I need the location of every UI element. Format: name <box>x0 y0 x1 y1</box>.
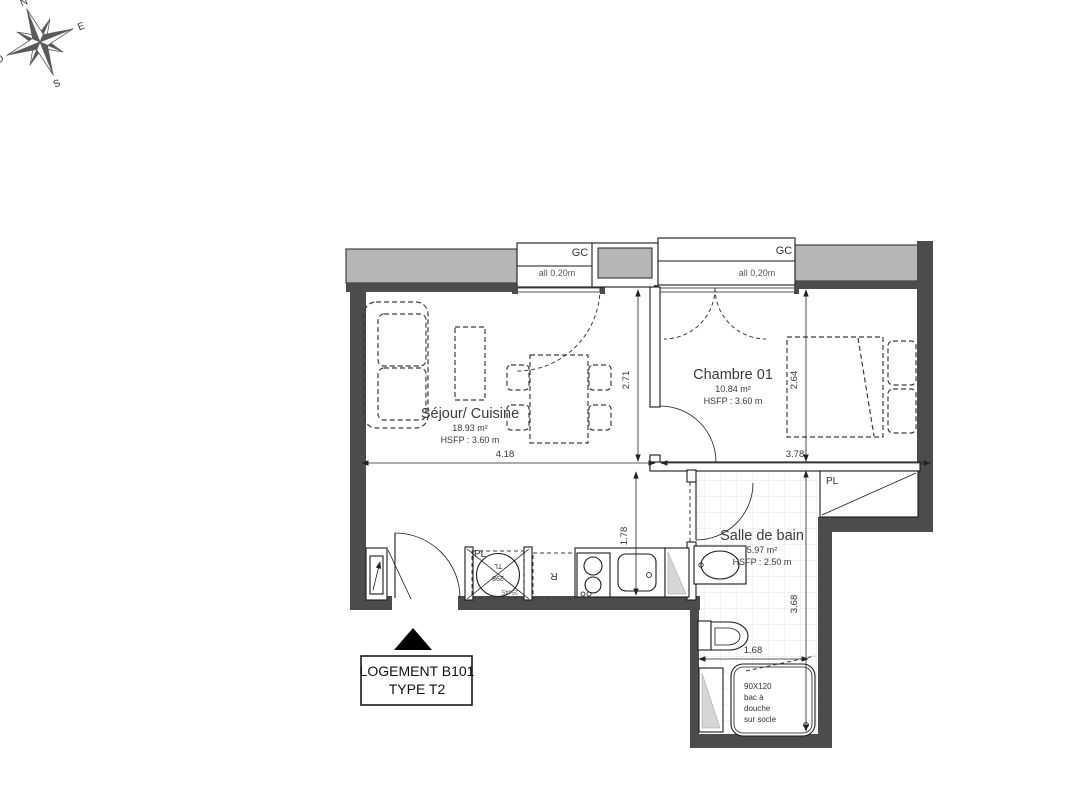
bath-closet-label: PL <box>826 476 839 487</box>
pillow <box>888 389 916 433</box>
svg-text:3.68: 3.68 <box>789 595 800 614</box>
bedroom-door <box>660 406 716 462</box>
dining-table-set <box>507 355 611 443</box>
svg-text:1.78: 1.78 <box>619 527 630 546</box>
fridge: R <box>533 553 575 598</box>
bain-hsfp: HSFP : 2.50 m <box>733 557 792 567</box>
washer-label-bottom: 298 <box>492 574 504 581</box>
fridge-label: R <box>550 570 557 581</box>
room-label-sejour: Séjour/ Cuisine 18.93 m² HSFP : 3.60 m <box>421 406 519 445</box>
wall-bathroom-right <box>818 532 832 748</box>
bain-area: 5.97 m² <box>747 545 778 555</box>
compass-east-label: E <box>76 20 87 33</box>
cooktop <box>577 553 610 597</box>
svg-text:4.18: 4.18 <box>496 449 515 460</box>
sejour-area: 18.93 m² <box>452 423 488 433</box>
dimension-chambre-width: 3.78 <box>661 449 930 463</box>
dimension-sejour-width: 4.18 <box>362 449 655 463</box>
toilet <box>698 621 748 650</box>
svg-text:1.68: 1.68 <box>744 645 763 656</box>
compass-south-label: S <box>52 78 63 91</box>
bathroom-closet: PL <box>820 471 918 517</box>
title-line1: LOGEMENT B101 <box>360 663 475 679</box>
sofa <box>364 302 428 428</box>
svg-text:2.64: 2.64 <box>789 371 800 390</box>
bathroom-duct <box>699 668 723 732</box>
window1-gc-label: GC <box>572 247 589 259</box>
sejour-name: Séjour/ Cuisine <box>421 406 519 422</box>
window-bay-1: GC all 0.20m <box>512 243 605 294</box>
shower-tray: 90X120 bac à douche sur socle <box>731 664 815 736</box>
svg-text:2.71: 2.71 <box>621 371 632 390</box>
pillow <box>888 341 916 385</box>
compass-star <box>0 0 87 89</box>
compass-west-label: O <box>0 53 6 66</box>
sejour-hsfp: HSFP : 3.60 m <box>441 435 500 445</box>
washer-label-top: TL <box>494 562 502 569</box>
bain-name: Salle de bain <box>720 528 804 544</box>
room-label-chambre: Chambre 01 10.84 m² HSFP : 3.60 m <box>693 367 773 406</box>
dimension-sejour-depth: 2.71 <box>621 290 638 461</box>
exterior-wall-right <box>917 241 933 532</box>
window2-swing-arc-left <box>664 288 715 339</box>
dimension-chambre-depth: 2.64 <box>789 290 806 461</box>
north-pointer-triangle <box>394 628 432 650</box>
exterior-wall-top-left <box>346 249 517 283</box>
kitchen-sink <box>618 554 656 591</box>
window1-allege-label: all 0.20m <box>539 268 576 278</box>
electrical-panel <box>366 548 411 600</box>
window2-allege-label: all 0,20m <box>739 268 776 278</box>
shower-label-line4: sur socle <box>744 715 777 724</box>
coffee-table <box>455 327 485 400</box>
window2-gc-label: GC <box>776 245 793 257</box>
chambre-hsfp: HSFP : 3.60 m <box>704 396 763 406</box>
window-bay-2: GC all 0,20m <box>654 238 799 294</box>
kitchen-closet-label: PL <box>474 549 487 560</box>
partition-sejour-chambre <box>650 287 660 407</box>
partition-bath-left-upper <box>687 470 696 482</box>
floor-plan-drawing: N E S O GC all 0.20m GC all 0,20m <box>0 0 1067 800</box>
wall-line-top-left <box>346 283 518 292</box>
wall-line-top-right <box>795 281 933 289</box>
window-pier <box>598 248 652 278</box>
shower-label-line1: 90X120 <box>744 682 772 691</box>
compass-rose: N E S O <box>0 0 103 107</box>
compass-north-label: N <box>19 0 30 9</box>
chambre-name: Chambre 01 <box>693 367 773 383</box>
shower-label-line3: douche <box>744 704 771 713</box>
floor-plan-page: N E S O GC all 0.20m GC all 0,20m <box>0 0 1067 800</box>
exterior-wall-top-right <box>795 245 932 281</box>
window2-swing-arc-right <box>715 288 766 339</box>
shower-label-line2: bac à <box>744 693 764 702</box>
kitchen-duct <box>665 548 689 597</box>
washer-size-label: 25x45 <box>501 588 518 594</box>
title-block: LOGEMENT B101 TYPE T2 <box>360 656 475 705</box>
svg-text:3.78: 3.78 <box>786 449 805 460</box>
title-line2: TYPE T2 <box>389 681 446 697</box>
washer-closet: PL TL 298 25x45 <box>465 547 532 600</box>
entrance-door <box>395 533 460 598</box>
chambre-area: 10.84 m² <box>715 384 751 394</box>
wall-bathroom-top-right-jog <box>818 517 933 532</box>
